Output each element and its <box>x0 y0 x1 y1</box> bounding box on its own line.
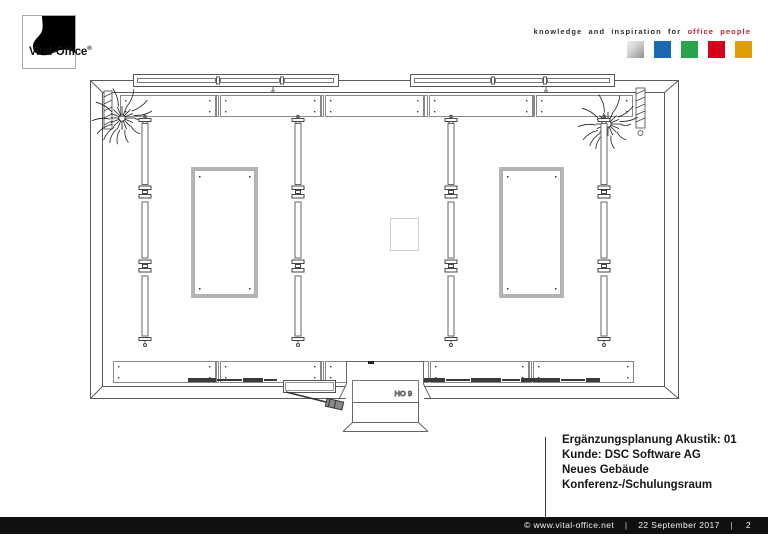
tagline-plain: knowledge and inspiration for <box>534 27 682 36</box>
conference-table-right <box>501 169 563 297</box>
wall-hatch-strip-right <box>636 88 645 136</box>
footer-page-number: 2 <box>746 520 751 530</box>
logo-wordmark: Vital-Office® <box>29 45 92 58</box>
drawing-sheet: HO 9 <box>0 0 768 543</box>
titleblock: Ergänzungsplanung Akustik: 01 Kunde: DSC… <box>562 433 737 493</box>
footer-separator: | <box>730 520 733 530</box>
brand-square-green <box>681 41 698 58</box>
brand-square-silver <box>627 41 644 58</box>
footer-date: 22 September 2017 <box>638 520 719 530</box>
brand-square-blue <box>654 41 671 58</box>
centre-floor-element <box>391 219 419 251</box>
footer-bar: © www.vital-office.net | 22 September 20… <box>0 517 768 534</box>
wall-hatch-strip-left <box>104 91 112 129</box>
conference-table-left <box>193 169 257 297</box>
entrance-vestibule: HO 9 <box>339 361 431 433</box>
registered-mark-icon: ® <box>87 45 92 52</box>
room-walls <box>91 81 679 399</box>
ceiling-rails <box>134 75 615 92</box>
footer-separator: | <box>625 520 628 530</box>
acoustic-wall-panels-top <box>121 96 633 117</box>
brand-square-gold <box>735 41 752 58</box>
vital-office-logo: Vital-Office® <box>22 15 92 69</box>
door-leaf <box>284 381 344 410</box>
titleblock-line-1: Ergänzungsplanung Akustik: 01 <box>562 433 737 448</box>
brand-tagline: knowledge and inspiration for office peo… <box>534 27 751 36</box>
titleblock-line-2: Kunde: DSC Software AG <box>562 448 737 463</box>
tagline-accent: office people <box>687 27 751 36</box>
room-label: HO 9 <box>394 389 412 398</box>
titleblock-line-4: Konferenz-/Schulungsraum <box>562 478 737 493</box>
titleblock-line-3: Neues Gebäude <box>562 463 737 478</box>
logo-mark <box>22 15 76 69</box>
brand-square-red <box>708 41 725 58</box>
brand-color-squares <box>627 41 752 58</box>
footer-copyright: © www.vital-office.net <box>524 520 614 530</box>
titleblock-divider-line <box>545 437 546 517</box>
